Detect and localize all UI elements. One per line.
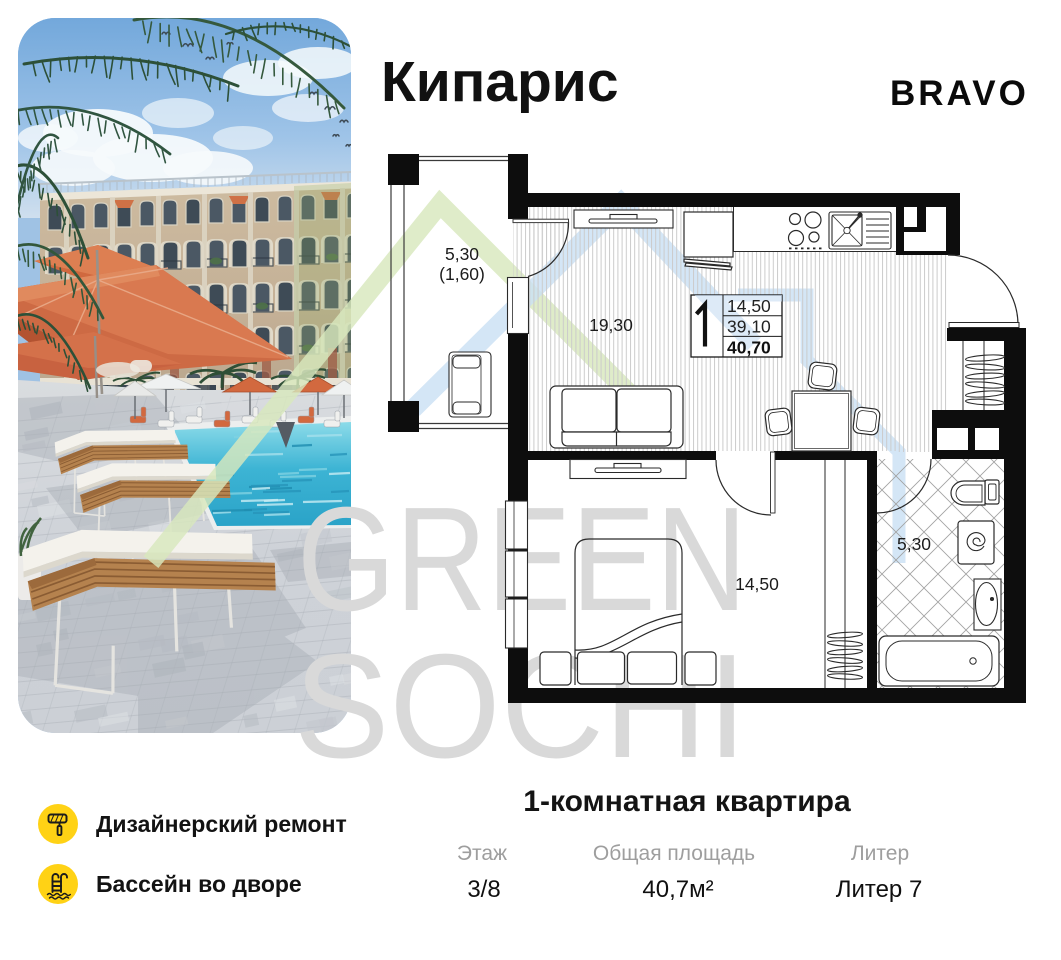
svg-text:40,70: 40,70 <box>727 338 771 358</box>
svg-text:5,30: 5,30 <box>897 534 931 554</box>
svg-text:14,50: 14,50 <box>735 574 779 594</box>
svg-text:14,50: 14,50 <box>727 296 771 316</box>
svg-text:39,10: 39,10 <box>727 317 771 337</box>
svg-text:5,30: 5,30 <box>445 244 479 264</box>
svg-text:19,30: 19,30 <box>589 315 633 335</box>
svg-text:(1,60): (1,60) <box>439 264 485 284</box>
